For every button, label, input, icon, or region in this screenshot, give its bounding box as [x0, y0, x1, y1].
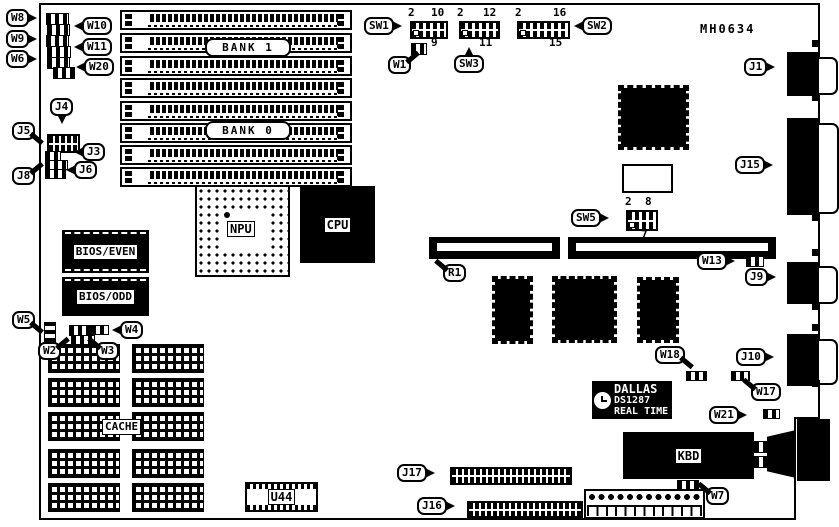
crystal-socket: [622, 164, 673, 193]
callout-w17: W17: [751, 383, 781, 401]
j6-label: J6: [79, 163, 92, 176]
cache-sram-chip: [132, 412, 204, 441]
connector-j1-shell: [819, 57, 838, 95]
callout-w10: W10: [82, 17, 112, 35]
switch-sw1: [410, 21, 448, 39]
callout-j17: J17: [397, 464, 427, 482]
sw5-label: SW5: [576, 211, 596, 224]
j1-label: J1: [749, 60, 762, 73]
cache-sram-chip: [132, 483, 204, 512]
rtc-part: DS1287: [614, 395, 668, 406]
jumper-w13: [746, 256, 764, 267]
mounting-hole: [812, 214, 820, 221]
sw2-pin-16: 16: [553, 7, 566, 18]
bios-even-chip: BIOS/EVEN: [62, 230, 149, 273]
sw1-label: SW1: [369, 19, 389, 32]
connector-j9-body: [787, 262, 820, 304]
w13-label: W13: [702, 254, 722, 267]
mounting-hole: [812, 249, 820, 256]
sw1-pin-2: 2: [408, 7, 415, 18]
w4-label: W4: [125, 323, 138, 336]
qfp-chip-2: [552, 276, 617, 343]
callout-w8: W8: [6, 9, 29, 27]
connector-j15-shell: [819, 123, 839, 214]
callout-w6: W6: [6, 50, 29, 68]
j5-label: J5: [17, 124, 30, 137]
cache-label: CACHE: [102, 419, 141, 435]
sw1-pin-9: 9: [431, 37, 438, 48]
j8-label: J8: [17, 169, 30, 182]
j9-label: J9: [750, 270, 763, 283]
kbd-label: KBD: [676, 449, 702, 463]
cache-sram-chip: [48, 449, 120, 478]
callout-j4: J4: [50, 98, 73, 116]
cpu-chip: CPU: [300, 186, 375, 263]
sw1-pin-10: 10: [431, 7, 444, 18]
mounting-hole: [812, 94, 820, 101]
connector-j16-header: [467, 501, 583, 518]
jumper-w20: [53, 67, 75, 79]
connector-j17-header: [450, 467, 572, 485]
rtc-tagline: REAL TIME: [614, 406, 668, 417]
w1-label: W1: [393, 58, 406, 71]
bios-even-label: BIOS/EVEN: [74, 245, 138, 259]
board-part-number: MH0634: [700, 22, 755, 36]
callout-sw2: SW2: [582, 17, 612, 35]
w21-label: W21: [714, 408, 734, 421]
jumper-w18: [686, 371, 707, 381]
npu-socket: NPU: [195, 185, 290, 277]
slot-2: [568, 237, 776, 259]
w9-label: W9: [11, 32, 24, 45]
npu-label: NPU: [227, 221, 255, 237]
sw3-pin-11: 11: [479, 37, 492, 48]
rtc-brand: DALLAS: [614, 383, 668, 395]
callout-w11: W11: [82, 38, 112, 56]
w6-label: W6: [11, 52, 24, 65]
cache-sram-chip: [132, 449, 204, 478]
callout-j8: J8: [12, 167, 35, 185]
cache-sram-chip: [132, 378, 204, 407]
callout-w18: W18: [655, 346, 685, 364]
callout-j16: J16: [417, 497, 447, 515]
callout-j6: J6: [74, 161, 97, 179]
connector-j1-body: [787, 52, 820, 96]
bank0-label: BANK 0: [205, 121, 291, 140]
callout-sw3: SW3: [454, 55, 484, 73]
connector-j15-body: [787, 118, 820, 215]
w7-label: W7: [711, 489, 724, 502]
w11-label: W11: [87, 40, 107, 53]
w17-label: W17: [756, 385, 776, 398]
connector-j10-shell: [819, 339, 838, 385]
j15-label: J15: [740, 158, 760, 171]
qfp-chip-large: [618, 85, 689, 150]
callout-w21: W21: [709, 406, 739, 424]
rtc-chip: DALLAS DS1287 REAL TIME: [592, 381, 672, 419]
mounting-hole: [812, 380, 820, 387]
sw2-label: SW2: [587, 19, 607, 32]
npu-core: NPU: [221, 209, 267, 253]
j10-label: J10: [741, 350, 761, 363]
sw3-pin-2: 2: [457, 7, 464, 18]
bios-odd-label: BIOS/ODD: [77, 290, 134, 304]
callout-w7: W7: [706, 487, 729, 505]
w10-label: W10: [87, 19, 107, 32]
qfp-chip-1: [492, 276, 533, 344]
jumper-w5: [44, 322, 56, 343]
simm-socket-row: [120, 101, 352, 121]
part-near-din-2: [754, 456, 767, 468]
keyboard-din-connector: [767, 430, 796, 478]
simm-socket-row: [120, 145, 352, 165]
callout-w4: W4: [120, 321, 143, 339]
cache-sram-chip: [48, 483, 120, 512]
callout-w20: W20: [84, 58, 114, 76]
w5-label: W5: [17, 313, 30, 326]
j4-label: J4: [55, 100, 68, 113]
mounting-hole: [812, 40, 820, 47]
mounting-hole: [812, 324, 820, 331]
j3-label: J3: [87, 145, 100, 158]
jumper-w4: [91, 325, 109, 335]
simm-socket-row: [120, 78, 352, 98]
w3-label: W3: [101, 344, 114, 357]
callout-w3: W3: [96, 342, 119, 360]
callout-j15: J15: [735, 156, 765, 174]
keyboard-din-housing: [797, 419, 830, 481]
part-near-din-1: [754, 441, 767, 453]
kbd-chip: KBD: [623, 432, 754, 479]
callout-w9: W9: [6, 30, 29, 48]
cpu-label: CPU: [325, 218, 351, 232]
clock-icon: [594, 392, 611, 409]
callout-w13: W13: [697, 252, 727, 270]
callout-j3: J3: [82, 143, 105, 161]
qfp-chip-3: [637, 277, 679, 343]
callout-sw5: SW5: [571, 209, 601, 227]
w8-label: W8: [11, 11, 24, 24]
simm-socket-row: [120, 56, 352, 76]
callout-j5: J5: [12, 122, 35, 140]
sw3-pin-12: 12: [483, 7, 496, 18]
bank1-label: BANK 1: [205, 38, 291, 57]
w20-label: W20: [89, 60, 109, 73]
w2-label: W2: [43, 344, 56, 357]
r1-slot: [429, 237, 560, 259]
simm-socket-area: [120, 10, 352, 190]
simm-socket-row: [120, 167, 352, 187]
callout-w1: W1: [388, 56, 411, 74]
jumper-w21: [763, 409, 780, 419]
sw5-pin-2: 2: [625, 196, 632, 207]
connector-j9-shell: [819, 266, 838, 304]
connector-j6-j8: [45, 169, 66, 179]
callout-j10: J10: [736, 348, 766, 366]
power-connector: [584, 489, 705, 519]
connector-j10-body: [787, 334, 820, 386]
u44-label: U44: [268, 489, 296, 505]
callout-sw1: SW1: [364, 17, 394, 35]
j16-label: J16: [422, 499, 442, 512]
bios-odd-chip: BIOS/ODD: [62, 277, 149, 316]
w18-label: W18: [660, 348, 680, 361]
motherboard-diagram: MH0634 BANK 1 BANK 0 2 10 9 2 12 11 2 16…: [0, 0, 839, 527]
callout-j1: J1: [744, 58, 767, 76]
sw3-label: SW3: [459, 57, 479, 70]
cache-sram-chip: [48, 378, 120, 407]
cache-sram-chip: [132, 344, 204, 373]
sw5-pin-7: 7: [641, 229, 648, 240]
mounting-hole: [812, 303, 820, 310]
callout-w2: W2: [38, 342, 61, 360]
r1-label: R1: [448, 266, 461, 279]
sw5-pin-8: 8: [645, 196, 652, 207]
u44-chip: U44: [245, 482, 318, 512]
callout-w5: W5: [12, 311, 35, 329]
sw2-pin-15: 15: [549, 37, 562, 48]
callout-r1: R1: [443, 264, 466, 282]
sw2-pin-2: 2: [515, 7, 522, 18]
j17-label: J17: [402, 466, 422, 479]
simm-socket-row: [120, 10, 352, 30]
callout-j9: J9: [745, 268, 768, 286]
